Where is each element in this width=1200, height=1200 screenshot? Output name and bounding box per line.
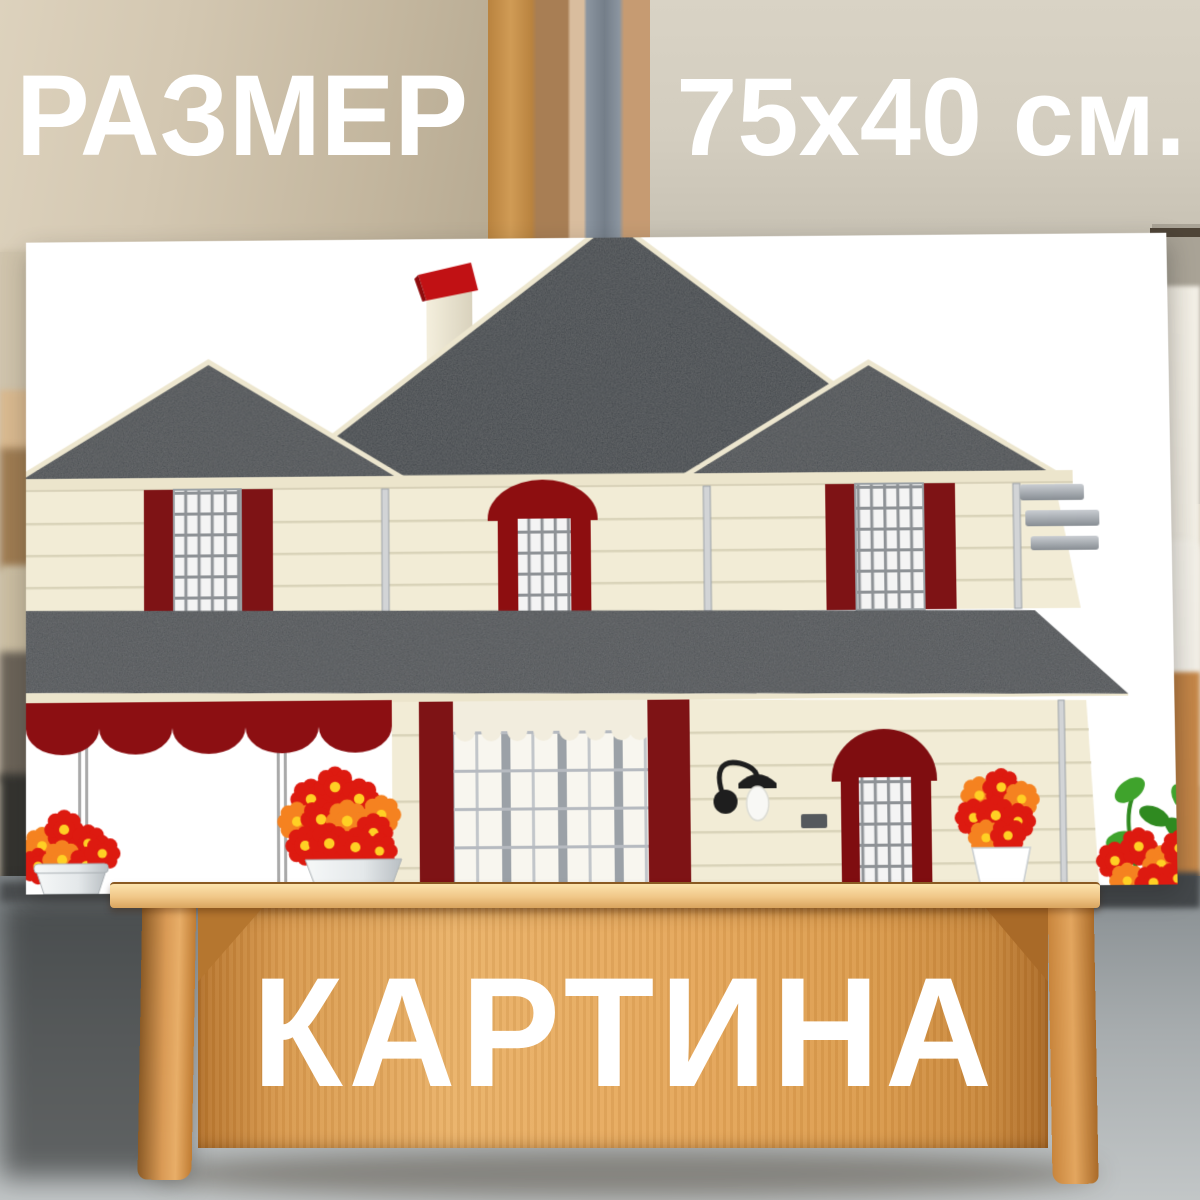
easel-tray-ledge	[110, 882, 1100, 908]
porch-roof	[26, 601, 1128, 703]
product-type-label: КАРТИНА	[174, 952, 1077, 1116]
picture-window	[453, 700, 651, 891]
mail-slot	[801, 814, 827, 828]
easel-mast	[488, 0, 650, 252]
artwork-canvas	[26, 233, 1178, 895]
size-label: РАЗМЕР	[16, 50, 468, 182]
corner-post-left	[419, 702, 454, 892]
arched-window	[487, 479, 598, 613]
tray-shadow	[150, 1150, 1100, 1198]
awning	[26, 700, 392, 755]
corner-post-right	[647, 699, 691, 889]
size-value: 75x40 см.	[662, 54, 1200, 181]
upper-window-left	[144, 489, 273, 616]
product-image: КАРТИНА РАЗМЕР 75x40 см.	[0, 0, 1200, 1200]
upper-window-right	[825, 483, 957, 610]
house-illustration	[26, 233, 1178, 895]
entry-door	[831, 728, 938, 887]
